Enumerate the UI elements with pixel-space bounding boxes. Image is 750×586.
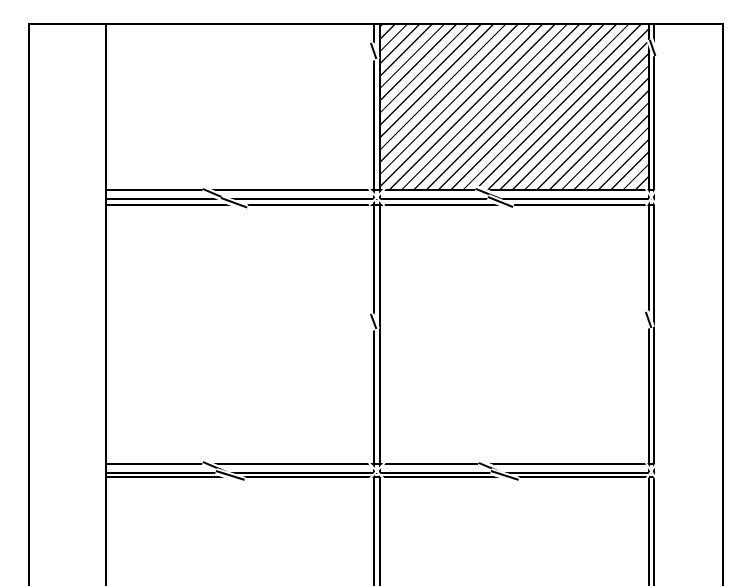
- outer-right-line: [722, 23, 724, 586]
- rail1-top-line: [105, 189, 655, 191]
- rail1-bottom-line: [105, 204, 655, 206]
- mullion-right-line: [379, 23, 381, 586]
- mullion-left-line: [373, 23, 375, 586]
- drawing-canvas[interactable]: [0, 0, 750, 586]
- outer-left-line: [28, 23, 30, 586]
- right-stile-outer-line: [653, 23, 655, 586]
- rail2-top-line: [105, 463, 655, 465]
- right-stile-inner-line: [648, 23, 650, 586]
- left-stile-line: [105, 23, 108, 586]
- hatched-panel[interactable]: [381, 25, 648, 189]
- frame-top-line: [28, 23, 724, 25]
